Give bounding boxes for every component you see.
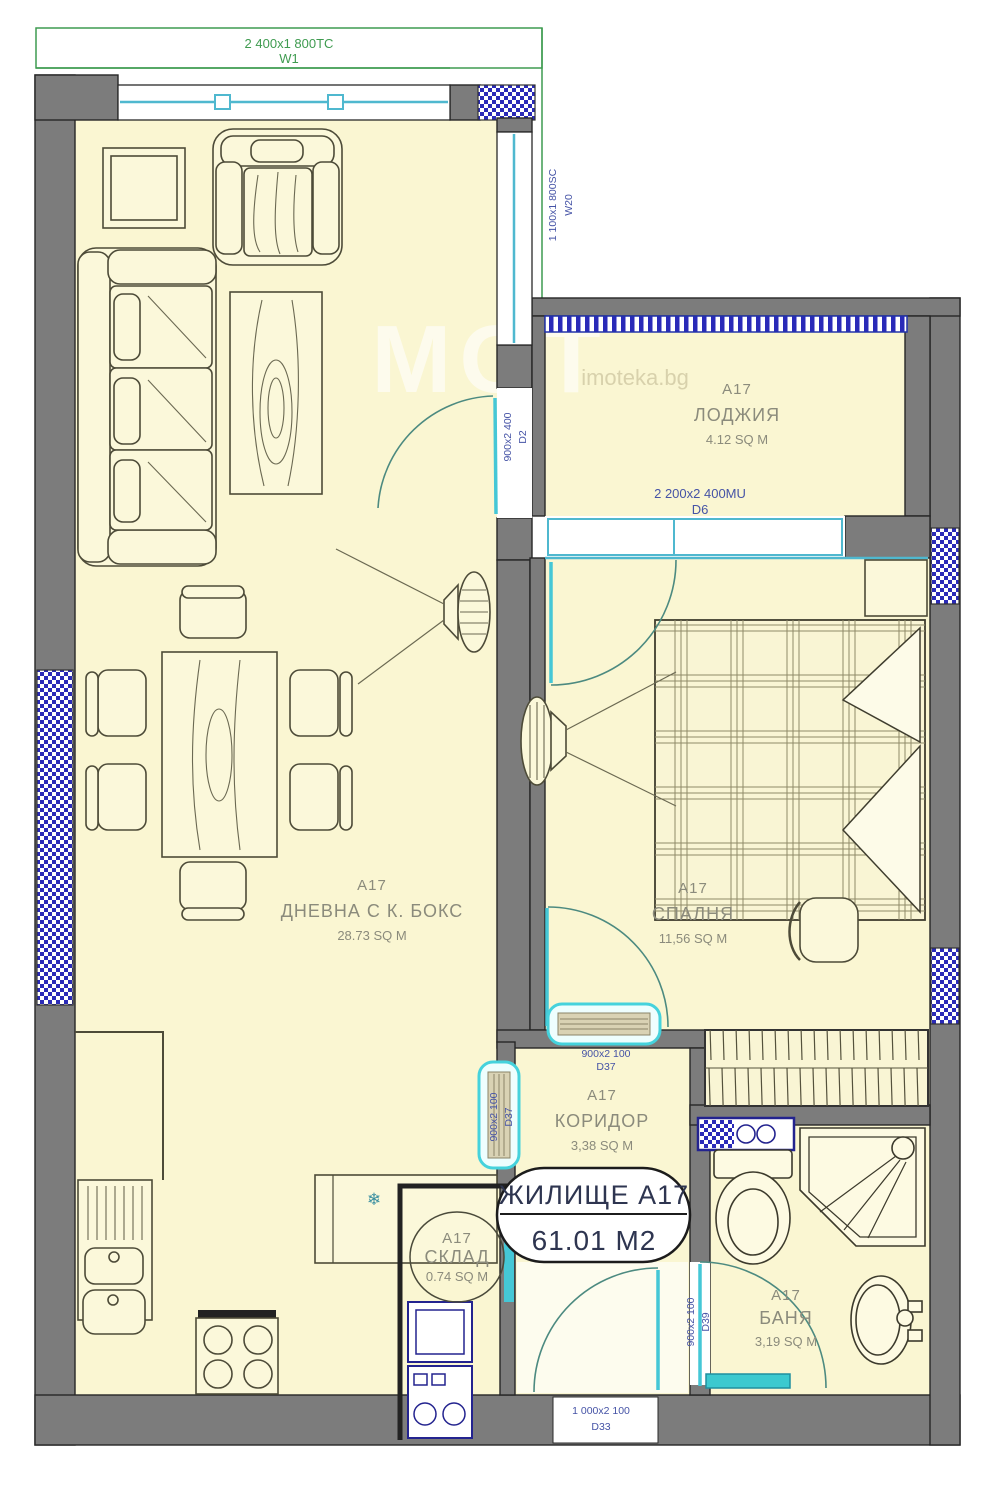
window-w1-mullion-1 (215, 95, 230, 109)
side-table (103, 148, 185, 228)
loggia-name: ЛОДЖИЯ (694, 405, 780, 425)
loggia-area: 4.12 SQ M (706, 432, 768, 447)
corridor-code: A17 (587, 1087, 617, 1104)
chair-left-2 (86, 764, 146, 830)
watermark-small: imoteka.bg (581, 365, 689, 390)
insulation-patch-right-upper (931, 528, 959, 604)
loggia-code: A17 (722, 381, 752, 398)
kitchen-sink (78, 1180, 152, 1334)
chair-top (180, 586, 246, 638)
bath-name: БАНЯ (759, 1308, 812, 1328)
wall-top-right-segment (450, 85, 480, 120)
bedroom-name: СПАЛНЯ (652, 904, 734, 924)
window-w1-mullion-2 (328, 95, 343, 109)
chair-left-1 (86, 670, 146, 736)
wall-loggia-left (532, 316, 545, 516)
wall-top-left-corner (35, 75, 118, 120)
w1-dim-label: 2 400x1 800TC (245, 36, 334, 51)
washing-machine (408, 1302, 472, 1438)
nightstand (865, 560, 927, 616)
storage-area: 0.74 SQ M (426, 1269, 488, 1284)
bedroom-code: A17 (678, 880, 708, 897)
insulation-patch-top (478, 85, 535, 120)
d39-code-label: D39 (700, 1312, 712, 1331)
living-area: 28.73 SQ M (337, 928, 406, 943)
wall-entry-top (497, 118, 532, 132)
wall-d6-right (845, 516, 930, 558)
bath-radiator (706, 1374, 790, 1388)
stove (196, 1310, 278, 1394)
wall-below-d2 (497, 518, 532, 560)
d39-dim-label: 900x2 100 (685, 1297, 697, 1346)
d2-dim-label: 900x2 400 (502, 412, 514, 461)
floor-plan-page: 2 400x1 800TC W1 МОТ imoteka.bg (0, 0, 1000, 1488)
storage-code: A17 (442, 1230, 472, 1247)
wall-loggia-right (905, 316, 930, 516)
w1-code-label: W1 (279, 51, 299, 66)
bath-code: A17 (771, 1287, 801, 1304)
bath-vanity (698, 1118, 794, 1150)
chair-right-2 (290, 764, 352, 830)
corridor-name: КОРИДОР (555, 1111, 649, 1131)
armchair (213, 129, 342, 265)
d37-kitchen-code-label: D37 (503, 1107, 515, 1126)
d37-kitchen-dim-label: 900x2 100 (488, 1092, 500, 1141)
coffee-table (230, 292, 322, 494)
d37-bedroom-dim-label: 900x2 100 (581, 1048, 630, 1060)
sliding-door-d37-bedroom (548, 1004, 660, 1044)
storage-name: СКЛАД (424, 1247, 489, 1267)
door-d2-leaf (495, 398, 496, 514)
wall-right (930, 298, 960, 1445)
d33-dim-label: 1 000x2 100 (572, 1405, 630, 1417)
apartment-summary-badge: ЖИЛИЩЕ А17 61.01 M2 (497, 1168, 690, 1262)
door-opening-d6 (545, 516, 845, 558)
wall-bottom (35, 1395, 960, 1445)
dining-table (162, 652, 277, 857)
chair-bottom (180, 862, 246, 920)
corridor-area: 3,38 SQ M (571, 1138, 633, 1153)
w20-code-label: W20 (563, 194, 575, 216)
insulation-patch-right-lower (931, 948, 959, 1024)
door-opening-d33 (553, 1397, 658, 1443)
wardrobe (705, 1030, 928, 1106)
bath-area: 3,19 SQ M (755, 1334, 817, 1349)
loggia-railing (545, 316, 907, 332)
d33-code-label: D33 (591, 1421, 610, 1433)
d37-bedroom-code-label: D37 (596, 1061, 615, 1073)
fridge-snowflake-icon: ❄ (367, 1190, 381, 1209)
wall-between-w20-d2 (497, 345, 532, 388)
summary-value: 61.01 M2 (532, 1225, 657, 1256)
bedroom-area: 11,56 SQ M (659, 931, 727, 946)
summary-label: ЖИЛИЩЕ А17 (499, 1180, 689, 1210)
living-name: ДНЕВНА С К. БОКС (281, 901, 464, 921)
wall-living-bedroom (497, 560, 530, 1042)
insulation-patch-left (37, 670, 73, 1005)
wall-bedroom-left (530, 558, 545, 1030)
w20-dim-label: 1 100x1 800SC (547, 168, 559, 241)
bed (655, 620, 925, 920)
living-code: A17 (357, 877, 387, 894)
chair-right-1 (290, 670, 352, 736)
toilet (714, 1150, 792, 1264)
d6-code-label: D6 (692, 502, 709, 517)
wall-loggia-top (532, 298, 960, 316)
floor-plan-drawing: 2 400x1 800TC W1 МОТ imoteka.bg (0, 0, 1000, 1488)
d6-dim-label: 2 200x2 400MU (654, 486, 746, 501)
d2-code-label: D2 (517, 430, 529, 444)
sofa (78, 248, 216, 566)
